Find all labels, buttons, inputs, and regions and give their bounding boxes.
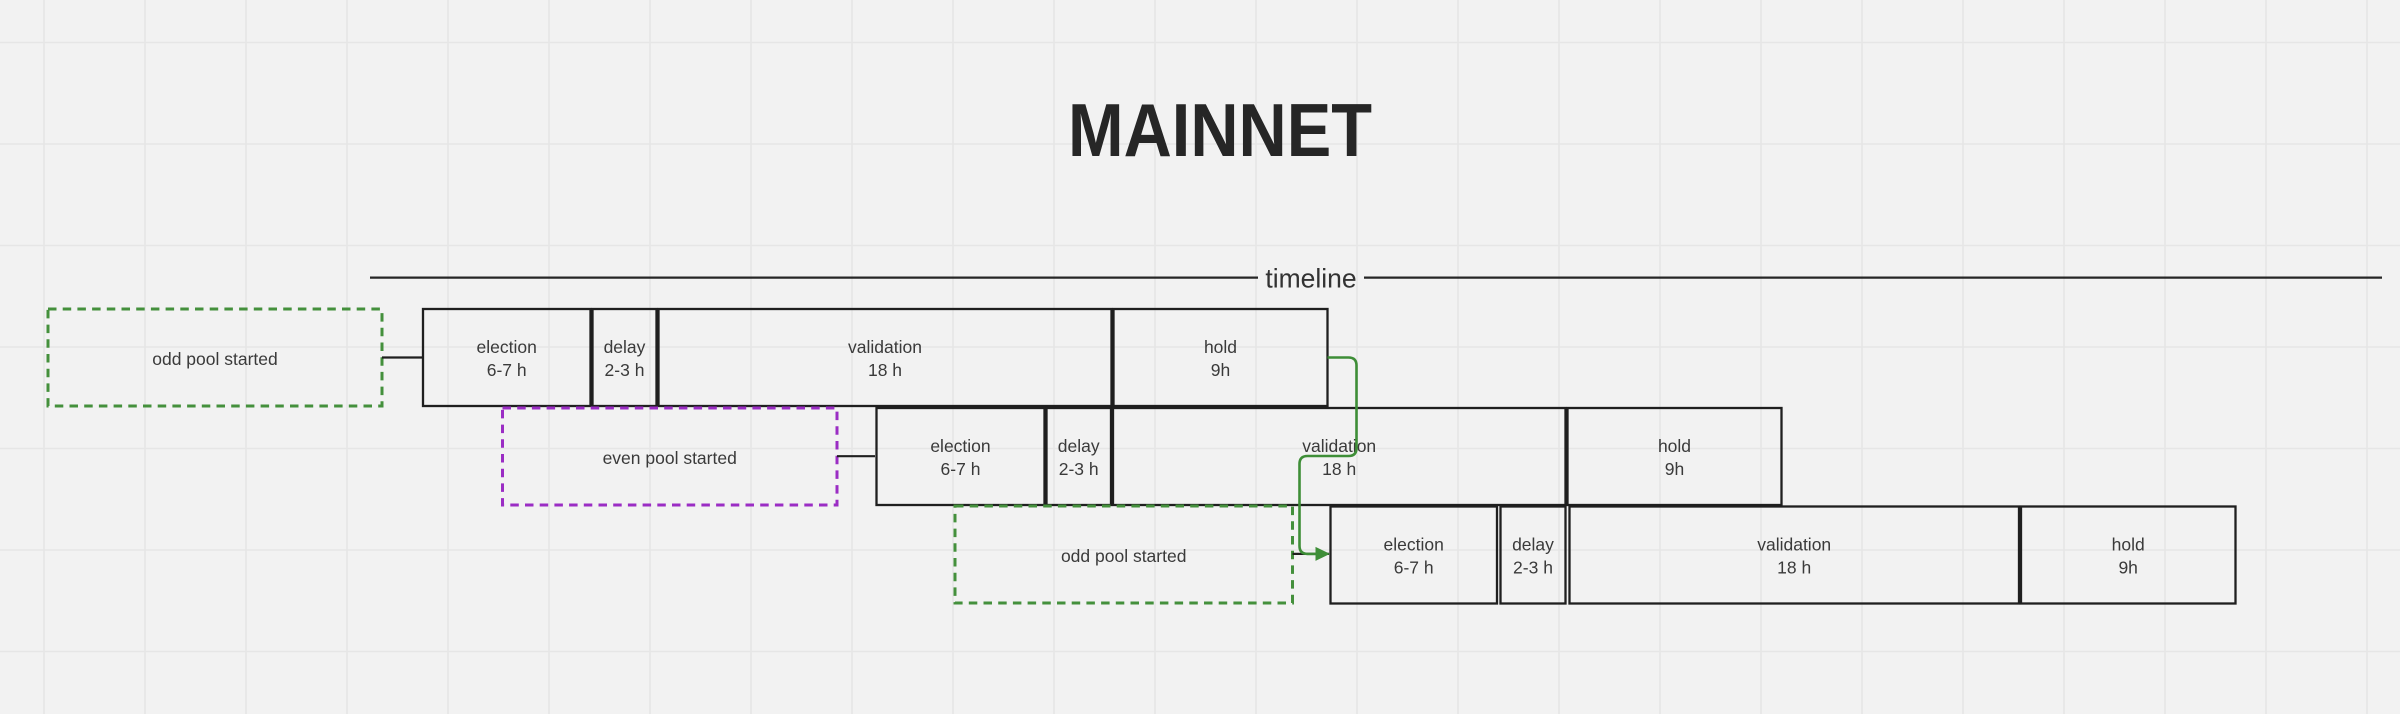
svg-text:9h: 9h: [2118, 558, 2137, 578]
svg-text:delay: delay: [1512, 535, 1554, 555]
svg-text:18 h: 18 h: [1322, 459, 1356, 479]
svg-text:election: election: [1384, 535, 1444, 555]
svg-text:hold: hold: [1204, 337, 1237, 357]
svg-text:18 h: 18 h: [1777, 558, 1811, 578]
svg-text:6-7 h: 6-7 h: [941, 459, 981, 479]
svg-text:9h: 9h: [1665, 459, 1684, 479]
svg-text:delay: delay: [1058, 436, 1100, 456]
svg-text:timeline: timeline: [1265, 264, 1356, 294]
svg-text:6-7 h: 6-7 h: [487, 360, 527, 380]
svg-text:election: election: [477, 337, 537, 357]
svg-text:election: election: [930, 436, 990, 456]
svg-text:2-3 h: 2-3 h: [1059, 459, 1099, 479]
svg-text:validation: validation: [1302, 436, 1376, 456]
svg-text:18 h: 18 h: [868, 360, 902, 380]
svg-text:odd pool started: odd pool started: [152, 349, 278, 369]
svg-text:even pool started: even pool started: [603, 448, 737, 468]
svg-text:6-7 h: 6-7 h: [1394, 558, 1434, 578]
svg-text:validation: validation: [848, 337, 922, 357]
svg-text:odd pool started: odd pool started: [1061, 546, 1187, 566]
svg-text:MAINNET: MAINNET: [1068, 88, 1372, 172]
svg-text:9h: 9h: [1211, 360, 1230, 380]
svg-text:2-3 h: 2-3 h: [605, 360, 645, 380]
svg-text:delay: delay: [604, 337, 646, 357]
svg-text:hold: hold: [2112, 535, 2145, 555]
svg-text:hold: hold: [1658, 436, 1691, 456]
svg-text:2-3 h: 2-3 h: [1513, 558, 1553, 578]
svg-text:validation: validation: [1757, 535, 1831, 555]
